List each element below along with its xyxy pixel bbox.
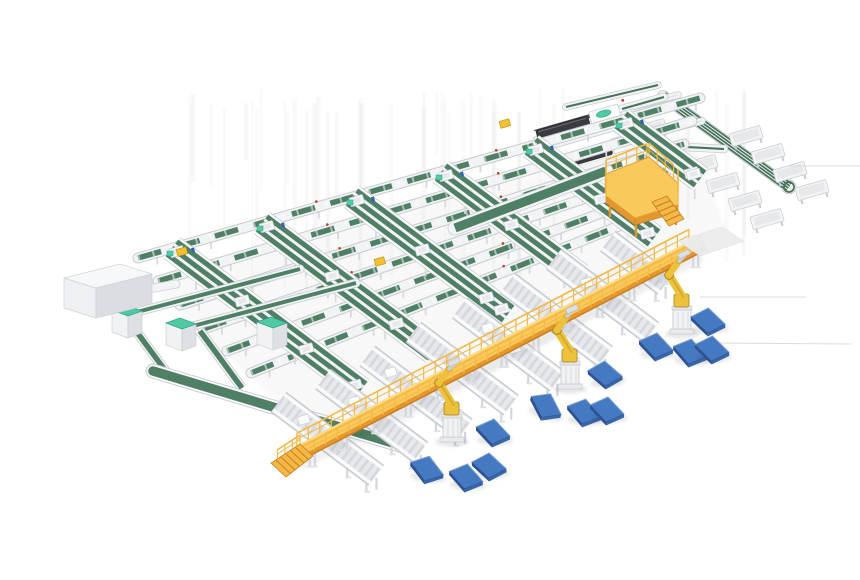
- artifact-lines: [700, 166, 860, 344]
- pallet-11: [695, 335, 733, 365]
- pallet-7: [587, 359, 627, 391]
- pallet-3: [476, 419, 513, 448]
- outfeed-table: [795, 179, 831, 205]
- outfeed-table: [750, 208, 786, 234]
- render-canvas: [0, 0, 860, 580]
- buffer-cabinet: [166, 318, 196, 351]
- buffer-cabinet: [257, 317, 287, 350]
- factory-3d-render: [0, 0, 860, 580]
- pallet-9: [690, 307, 728, 337]
- pallet-4: [525, 389, 568, 427]
- parcel-yellow: [499, 119, 511, 128]
- pallet-6: [590, 397, 627, 426]
